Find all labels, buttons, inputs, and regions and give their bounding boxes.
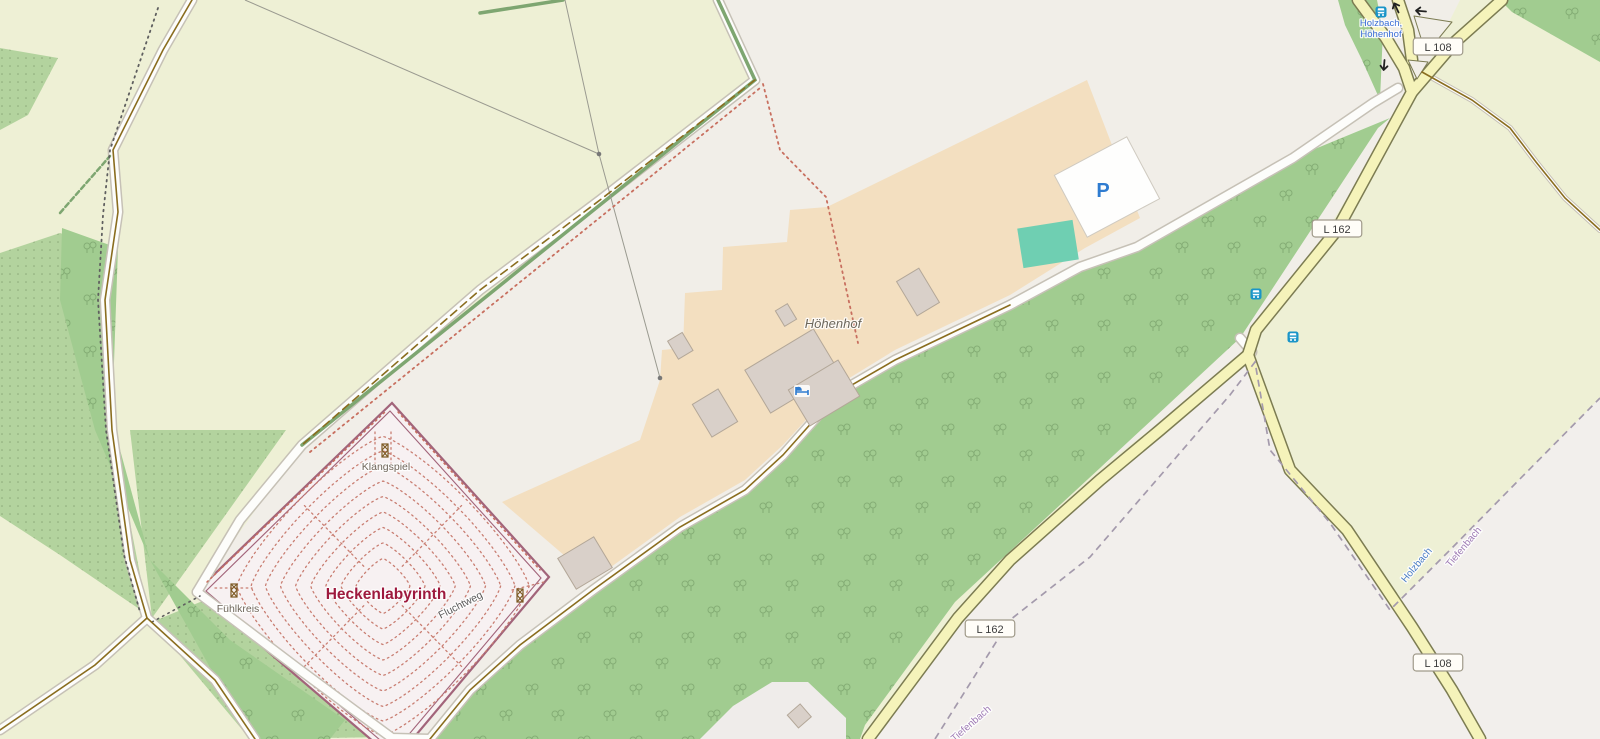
bus-stop-name: Holzbach, [1360, 18, 1402, 29]
bus-stop-icon [1251, 289, 1262, 300]
road-ref-badge: L 162 [965, 620, 1015, 637]
label-klangspiel: Klangspiel [362, 461, 410, 473]
parking-label: P [1096, 180, 1109, 202]
road-ref-badge: L 108 [1413, 654, 1463, 671]
power-pole-icon [658, 376, 663, 381]
bus-stop-name: Höhenhof [1360, 29, 1402, 40]
svg-text:L 162: L 162 [976, 624, 1003, 636]
map-canvas[interactable]: HöhenhofHeckenlabyrinthKlangspielFühlkre… [0, 0, 1600, 739]
road-ref-badge: L 108 [1413, 38, 1463, 55]
svg-text:L 108: L 108 [1424, 42, 1451, 54]
svg-text:L 162: L 162 [1323, 224, 1350, 236]
guest-house-icon [794, 385, 810, 397]
bus-stop-icon [1376, 7, 1387, 18]
label-h-henhof: Höhenhof [805, 316, 863, 331]
label-f-hlkreis: Fühlkreis [217, 603, 260, 615]
bus-stop-icon [1288, 332, 1299, 343]
label-heckenlabyrinth: Heckenlabyrinth [326, 586, 447, 603]
road-ref-badge: L 162 [1312, 220, 1362, 237]
power-pole-icon [597, 152, 602, 157]
svg-text:L 108: L 108 [1424, 658, 1451, 670]
